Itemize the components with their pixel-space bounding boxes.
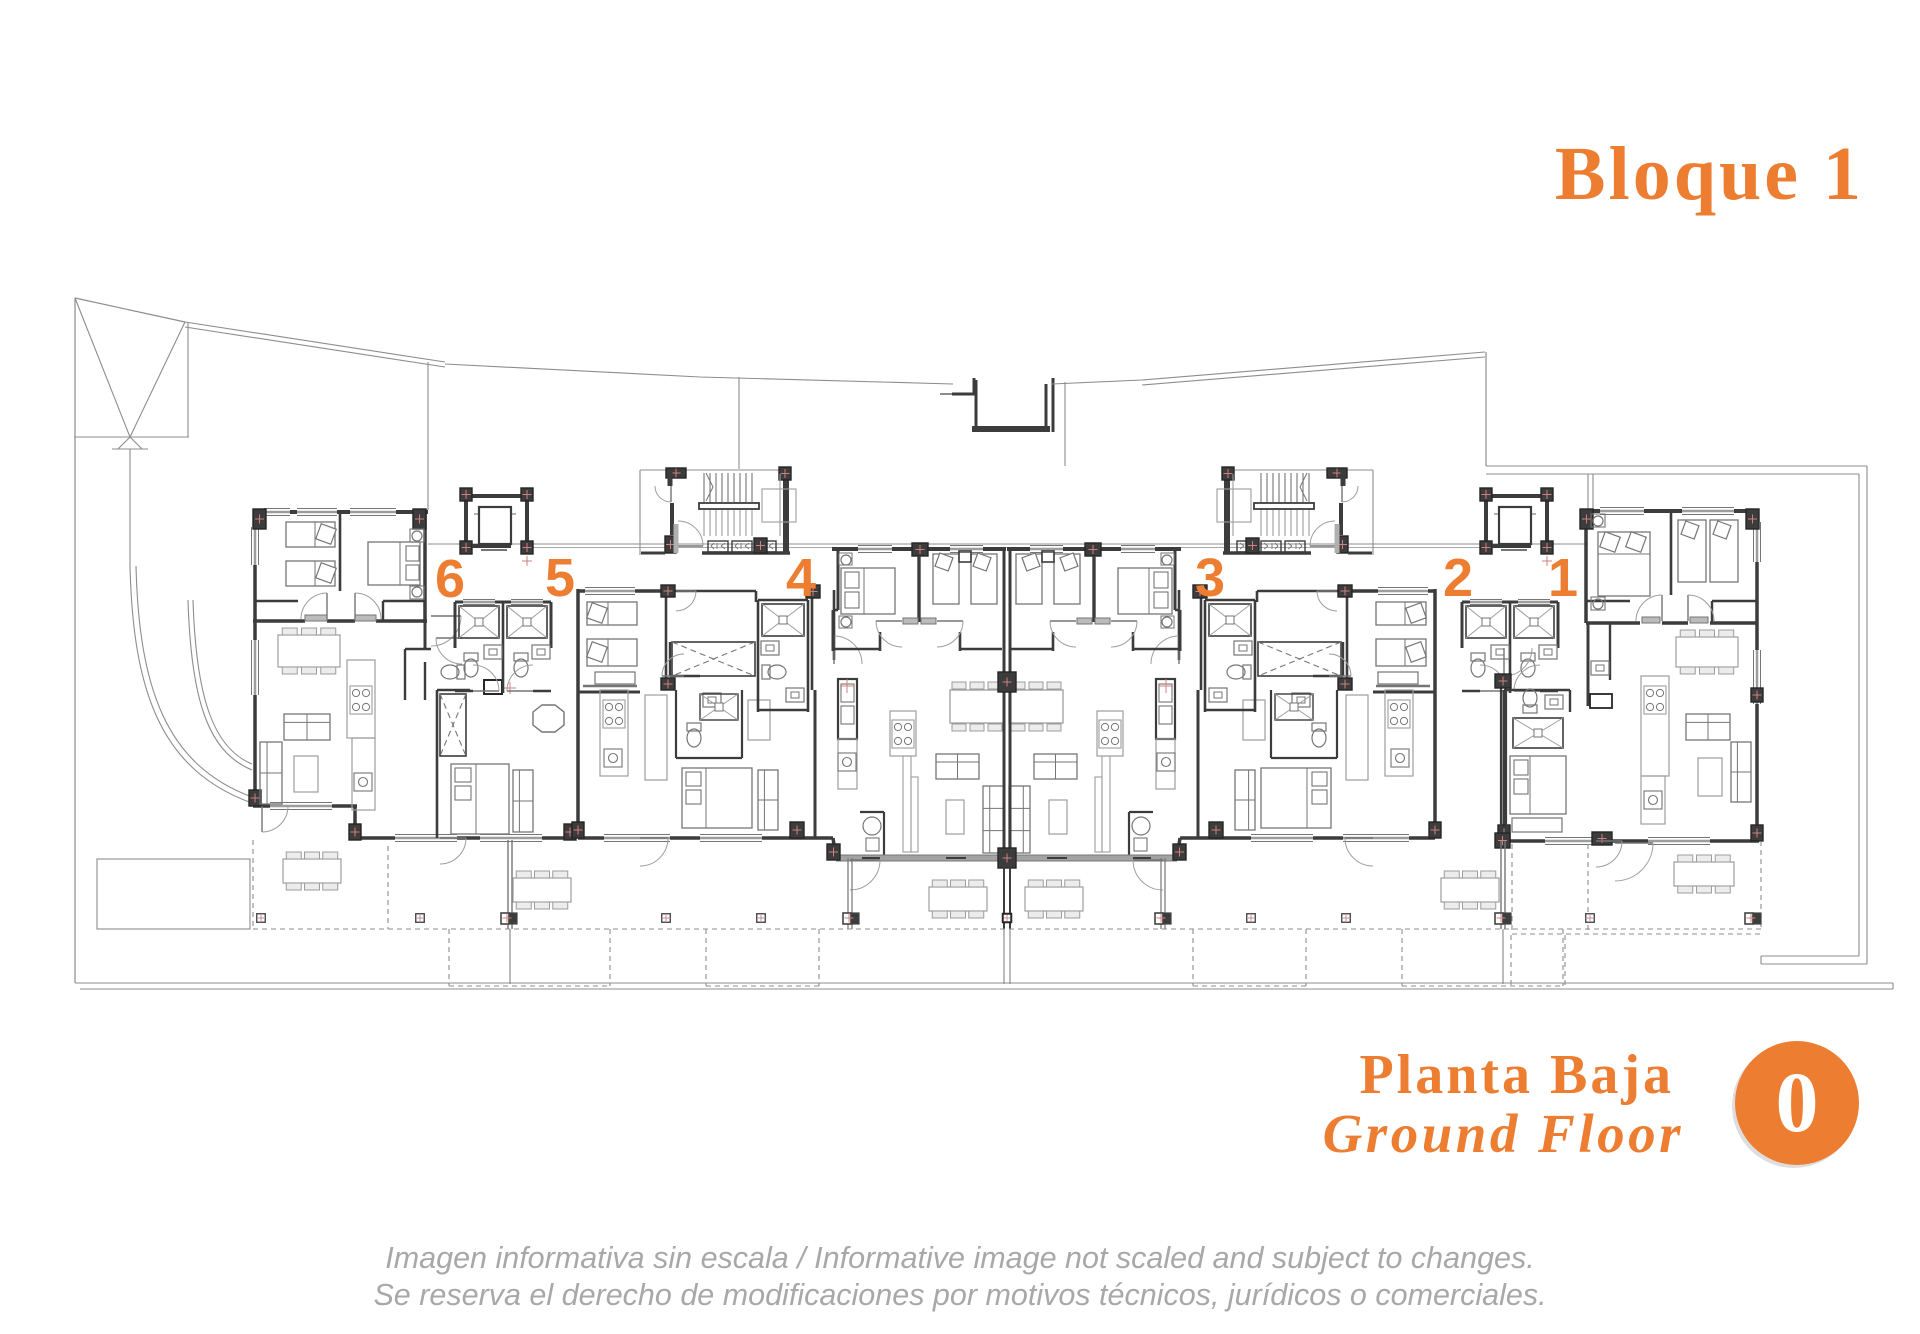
svg-text:Planta Baja: Planta Baja [1359,1044,1674,1106]
svg-text:5: 5 [545,548,575,608]
svg-text:4: 4 [786,548,816,608]
svg-text:Imagen informativa sin escala: Imagen informativa sin escala / Informat… [385,1241,1534,1275]
svg-text:3: 3 [1195,548,1225,608]
svg-text:Bloque 1: Bloque 1 [1555,132,1864,216]
svg-text:0: 0 [1776,1054,1819,1150]
svg-text:Se reserva el derecho de modif: Se reserva el derecho de modificaciones … [373,1278,1546,1312]
svg-text:Ground Floor: Ground Floor [1323,1103,1684,1164]
svg-text:6: 6 [435,549,465,609]
svg-text:2: 2 [1443,548,1473,608]
svg-text:1: 1 [1548,548,1578,608]
